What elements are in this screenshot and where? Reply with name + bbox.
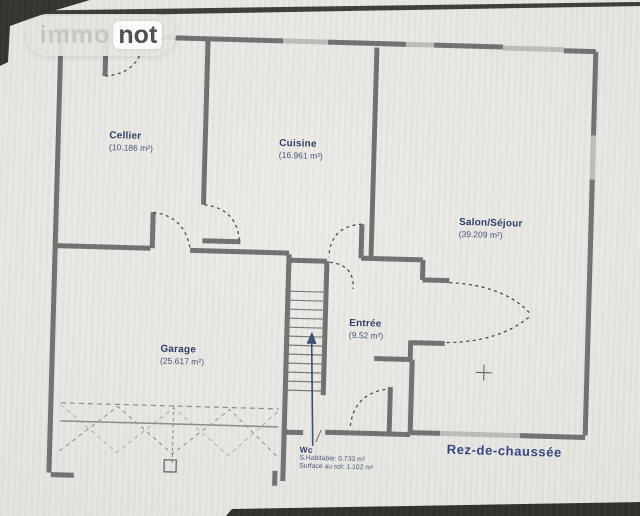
stair-tread [290, 309, 326, 310]
room-label-cuisine: Cuisine (16.961 m²) [279, 138, 324, 161]
window [440, 433, 520, 435]
room-label-salon-sejour: Salon/Séjour (39.209 m²) [459, 217, 523, 241]
wall [371, 48, 377, 259]
stair-tread [288, 354, 324, 355]
door-arc [447, 314, 531, 345]
wall [51, 475, 74, 476]
wall [389, 387, 390, 434]
floor-title: Rez-de-chaussée [447, 442, 563, 460]
garage-door-truss [60, 405, 279, 457]
room-area: (9.52 m²) [349, 330, 384, 341]
door-arc [329, 223, 362, 258]
stair-tread [288, 381, 324, 382]
windows [272, 41, 596, 438]
walls [46, 29, 596, 495]
garage-door-line [61, 403, 279, 409]
wall [152, 212, 153, 248]
wall [291, 260, 327, 261]
room-label-wc: Wc S.Habitable: 0.733 m² Surface au sol:… [299, 445, 374, 473]
window [406, 44, 434, 45]
window [592, 136, 593, 180]
stair-tread [289, 327, 325, 328]
floorplan-photo: Cellier (10.186 m²) Cuisine (16.961 m²) … [0, 0, 640, 516]
stair-tread [287, 390, 323, 391]
window [503, 48, 564, 50]
stair-tread [289, 318, 325, 319]
room-label-entree: Entrée (9.52 m²) [349, 318, 384, 341]
door-arc [350, 388, 388, 427]
watermark-immo-text: immo [40, 21, 111, 50]
wall [202, 241, 240, 242]
stair-tread [289, 336, 325, 337]
garage-door-truss [60, 405, 279, 457]
wall [410, 360, 412, 434]
wall [374, 340, 445, 361]
stairs [287, 291, 326, 391]
window [283, 41, 328, 42]
center-cross-marker [476, 364, 492, 380]
garage-door-line [60, 421, 278, 427]
wall [284, 431, 410, 436]
stair-arrow [304, 332, 317, 446]
wall [360, 258, 450, 280]
wall [283, 254, 289, 481]
immonot-watermark-logo: immo not [26, 14, 176, 56]
garage-door-post [172, 406, 174, 464]
wall [553, 51, 596, 436]
room-label-garage: Garage (25.617 m²) [160, 344, 205, 367]
wall [361, 224, 362, 258]
stair-tread [290, 291, 326, 292]
stair-tread [289, 345, 325, 346]
garage-door [59, 403, 279, 475]
wc-leader-line [316, 430, 321, 442]
door-arc [203, 205, 240, 242]
door-arc [449, 283, 532, 314]
wall [203, 41, 208, 205]
stair-tread [288, 372, 324, 373]
room-area: (10.186 m²) [109, 142, 153, 153]
garage-door-anchor [164, 460, 176, 472]
watermark-not-badge: not [113, 21, 162, 50]
floorplan: Cellier (10.186 m²) Cuisine (16.961 m²) … [0, 0, 640, 516]
stair-tread [288, 363, 324, 364]
stair-tread [290, 300, 326, 301]
floorplan-drawing [0, 0, 640, 516]
room-area: (25.617 m²) [160, 355, 204, 366]
room-area: (16.961 m²) [279, 150, 323, 161]
wall [49, 29, 61, 473]
door-arc [329, 262, 354, 289]
wall [190, 250, 289, 253]
wall [56, 246, 150, 249]
door-arc [152, 212, 191, 249]
room-area: (39.209 m²) [459, 229, 523, 241]
room-name: Entrée [349, 318, 384, 331]
room-label-cellier: Cellier (10.186 m²) [109, 130, 154, 153]
